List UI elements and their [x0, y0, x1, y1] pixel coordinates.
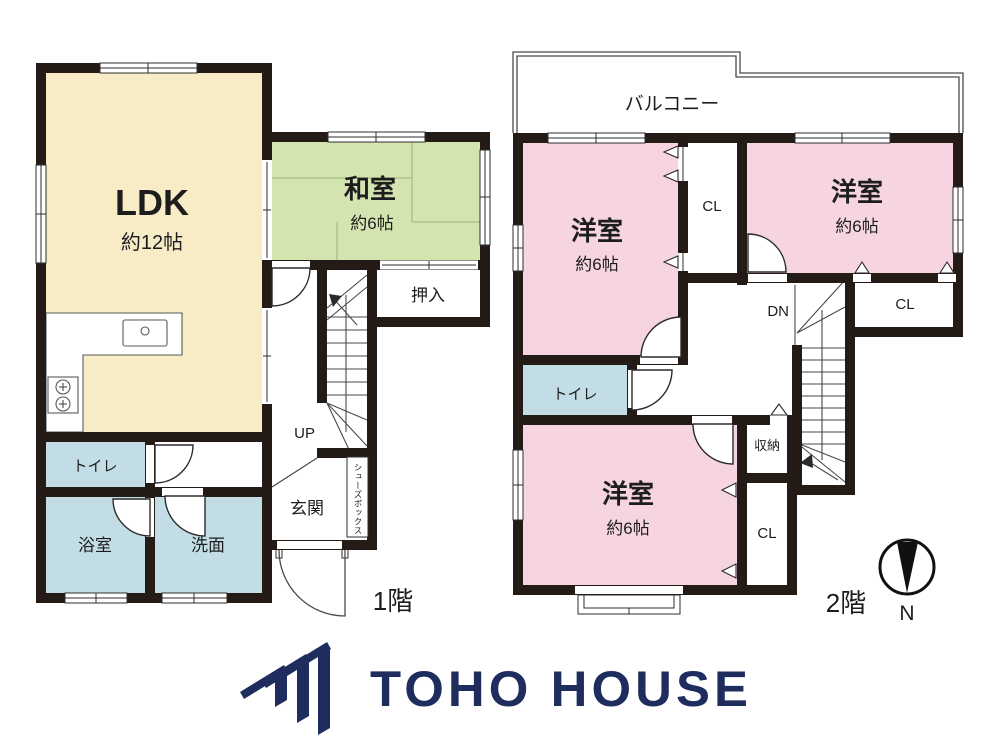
washitsu-door — [272, 268, 310, 306]
compass: N — [880, 540, 934, 625]
compass-north-label: N — [899, 602, 914, 625]
window-washroom-bottom — [162, 593, 227, 603]
bedroom-left-floor — [523, 143, 678, 355]
bedroom-bottom-size: 約6帖 — [606, 519, 649, 538]
bedroom-right-size: 約6帖 — [835, 217, 878, 236]
window-2f-bay-bottom — [575, 586, 683, 614]
compass-needle-icon — [897, 542, 918, 593]
window-2f-right — [953, 187, 963, 253]
ldk-label: LDK — [115, 182, 189, 223]
toilet2-label: トイレ — [552, 386, 597, 403]
floorplan-page: LDK 約12帖 和室 約6帖 押入 トイレ 浴室 洗面 玄関 UP 1階 — [0, 0, 1000, 750]
closet-bottom-label: CL — [757, 525, 776, 542]
window-2f-left-upper — [513, 225, 523, 271]
entrance-door — [279, 550, 345, 616]
closet-top-label: CL — [702, 198, 721, 215]
toilet1-door — [155, 445, 193, 483]
bedroom-bottom-label: 洋室 — [602, 479, 654, 509]
floor2-plan: バルコニー 洋室 約6帖 洋室 約6帖 洋室 約6帖 CL CL CL トイレ … — [513, 52, 963, 618]
stairs-up-label: UP — [294, 425, 315, 442]
genkan-step-line — [272, 458, 317, 487]
toilet1-label: トイレ — [72, 458, 117, 475]
storage-label: 収納 — [754, 438, 780, 453]
washroom-label: 洗面 — [191, 536, 225, 555]
oshiire-label: 押入 — [411, 286, 445, 305]
window-bath-bottom — [65, 593, 127, 603]
washitsu-label: 和室 — [344, 174, 396, 204]
window-2f-left-lower — [513, 450, 523, 520]
window-ldk-left — [36, 165, 46, 263]
toilet2-door — [632, 370, 672, 410]
toho-house-logo-mark-icon — [240, 642, 331, 735]
window-washitsu-right — [480, 150, 490, 245]
ldk-size: 約12帖 — [121, 231, 183, 254]
stairs-down-label: DN — [767, 303, 789, 320]
bedroom-left-label: 洋室 — [571, 216, 623, 246]
stairs-1f — [327, 275, 367, 458]
window-2f-top-right — [795, 133, 890, 143]
washitsu-size: 約6帖 — [350, 214, 393, 233]
shoebox-label: シューズボックス — [347, 461, 368, 537]
toho-house-logo: TOHO HOUSE — [240, 642, 752, 735]
sink-faucet — [141, 327, 149, 335]
balcony-label: バルコニー — [625, 94, 720, 115]
bedroom-right-label: 洋室 — [831, 177, 883, 207]
bedroom-left-size: 約6帖 — [575, 255, 618, 274]
window-2f-top-left — [548, 133, 645, 143]
window-washitsu-top — [328, 132, 425, 142]
entrance-label: 玄関 — [290, 499, 324, 518]
window-ldk-top — [100, 63, 197, 73]
floor1-plan: LDK 約12帖 和室 約6帖 押入 トイレ 浴室 洗面 玄関 UP 1階 — [36, 63, 490, 616]
balcony-outline — [513, 52, 963, 133]
floor1-label: 1階 — [373, 586, 413, 616]
bath-label: 浴室 — [78, 536, 112, 555]
floorplan-drawing: LDK 約12帖 和室 約6帖 押入 トイレ 浴室 洗面 玄関 UP 1階 — [0, 0, 1000, 750]
closet-right-label: CL — [895, 296, 914, 313]
stairs-2f — [795, 280, 845, 482]
toho-house-logo-text: TOHO HOUSE — [370, 661, 752, 717]
floor2-label: 2階 — [826, 588, 866, 618]
